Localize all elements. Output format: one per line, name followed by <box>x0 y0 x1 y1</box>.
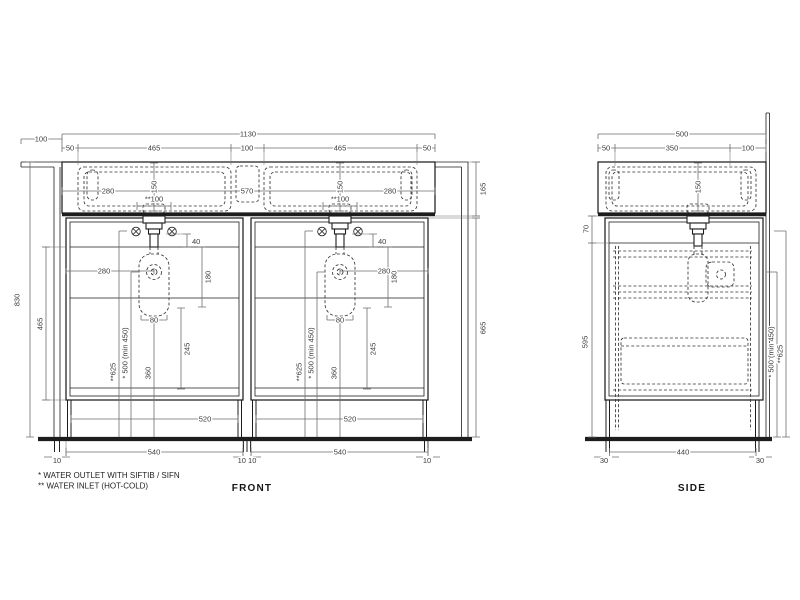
side-view: 500 50 350 100 150 70 595 440 30 30 * 50… <box>581 113 790 494</box>
drain-tailpiece-side <box>687 216 709 246</box>
dim-front-unit-width-right: 540 <box>334 448 347 457</box>
dim-front-edge-left: 50 <box>66 144 74 153</box>
dim-front-inlet-spacing-right: **100 <box>331 195 349 204</box>
dim-front-drain-spacing: 570 <box>241 187 254 196</box>
dim-side-basin-depth: 150 <box>694 181 703 194</box>
front-structure <box>21 162 472 452</box>
dim-front-clear-width-left: 520 <box>199 415 212 424</box>
dim-front-basin-depth-right: 150 <box>336 181 345 194</box>
note-water-inlet: ** WATER INLET (HOT-COLD) <box>38 482 148 491</box>
dim-front-basin-width-left: 465 <box>148 144 161 153</box>
dim-front-basin-width-right: 465 <box>334 144 347 153</box>
side-view-label: SIDE <box>678 483 706 494</box>
side-dimension-lines <box>588 134 790 457</box>
note-water-outlet: * WATER OUTLET WITH SIFTIB / SIFN <box>38 471 180 480</box>
dim-side-front-edge: 50 <box>602 144 610 153</box>
dim-side-back-ledge: 100 <box>742 144 755 153</box>
wall-bracket-left <box>21 162 62 437</box>
dim-side-inlet-height: **625 <box>776 345 785 363</box>
drawing-sheet: 100 1130 50 465 100 465 50 280 570 280 1… <box>0 0 800 600</box>
dim-side-body-height: 595 <box>581 336 590 349</box>
technical-drawing: 100 1130 50 465 100 465 50 280 570 280 1… <box>0 0 800 600</box>
front-dimension-labels: 100 1130 50 465 100 465 50 280 570 280 1… <box>13 130 488 465</box>
foot-stubs-front <box>55 441 429 452</box>
side-basin <box>606 167 756 213</box>
dim-side-outlet-height: * 500 (min 450) <box>767 326 776 378</box>
dim-front-cabinet-height: 665 <box>479 322 488 335</box>
dim-front-inlet-height-left: **625 <box>109 363 118 381</box>
dim-front-lower-zone-right: 245 <box>369 343 378 356</box>
dim-front-door-height: 465 <box>36 318 45 331</box>
dim-front-trap-width-left: 80 <box>150 316 158 325</box>
dim-front-trap-floor-left: 360 <box>144 367 153 380</box>
dim-front-drain-offset-left: 280 <box>102 187 115 196</box>
drain-tailpiece-right <box>329 216 351 247</box>
side-plumbing <box>613 216 752 430</box>
front-plumbing <box>132 216 363 316</box>
dim-side-foot-back: 30 <box>756 456 764 465</box>
cabinet-right <box>251 218 428 437</box>
siphon-trap-right <box>325 247 355 316</box>
siphon-trap-left <box>139 247 169 316</box>
cabinet-left <box>66 218 243 437</box>
siphon-trap-side <box>688 246 734 302</box>
dim-front-unit-width-left: 540 <box>148 448 161 457</box>
cabinet-legs-right <box>253 400 427 437</box>
dim-side-total-depth: 500 <box>676 130 689 139</box>
footnotes: * WATER OUTLET WITH SIFTIB / SIFN ** WAT… <box>38 471 180 491</box>
dim-side-foot-front: 30 <box>600 456 608 465</box>
dim-front-edge-right: 50 <box>423 144 431 153</box>
basin-center-channel <box>236 166 259 202</box>
dim-front-total-width: 1130 <box>240 130 256 139</box>
dim-front-siphon-height-left: 180 <box>204 271 213 284</box>
dim-front-lower-zone-left: 245 <box>183 343 192 356</box>
dim-front-trap-width-right: 80 <box>336 316 344 325</box>
side-structure <box>585 113 772 452</box>
dim-side-top-zone: 70 <box>582 225 591 233</box>
dim-front-trap-floor-right: 360 <box>330 367 339 380</box>
drain-tailpiece-left <box>143 216 165 247</box>
dim-front-panel-left: 10 <box>53 456 61 465</box>
dim-side-base-depth: 440 <box>677 448 690 457</box>
front-view: 100 1130 50 465 100 465 50 280 570 280 1… <box>13 130 488 494</box>
cabinet-interior-dashed <box>613 246 752 430</box>
dim-front-top-gap-right: 40 <box>378 237 386 246</box>
dim-front-height-total: 830 <box>13 294 22 307</box>
dim-front-drain-offset-right: 280 <box>384 187 397 196</box>
dim-front-panel-right: 10 <box>423 456 431 465</box>
dim-front-top-gap-left: 40 <box>192 237 200 246</box>
dim-front-outlet-height-left: * 500 (min 450) <box>121 327 130 379</box>
dim-front-siphon-height-right: 180 <box>390 271 399 284</box>
dim-front-inlet-height-right: **625 <box>295 363 304 381</box>
dim-front-inlet-spacing-left: **100 <box>145 195 163 204</box>
dim-front-overhang: 100 <box>35 135 48 144</box>
dim-front-siphon-offset-right: 280 <box>378 267 391 276</box>
wall-bracket-right <box>435 162 468 437</box>
cabinet-legs-left <box>68 400 242 437</box>
side-dimension-labels: 500 50 350 100 150 70 595 440 30 30 * 50… <box>581 130 785 465</box>
dim-front-panel-center: 10 10 <box>238 456 257 465</box>
dim-front-counter-height: 165 <box>479 183 488 196</box>
dim-front-basin-gap: 100 <box>241 144 254 153</box>
cabinet-legs-side <box>606 400 759 437</box>
front-view-label: FRONT <box>232 483 272 494</box>
dim-front-siphon-offset-left: 280 <box>98 267 111 276</box>
dim-front-basin-depth-left: 150 <box>150 181 159 194</box>
dim-front-clear-width-right: 520 <box>344 415 357 424</box>
dim-side-drain-depth: 350 <box>666 144 679 153</box>
dim-front-outlet-height-right: * 500 (min 450) <box>307 327 316 379</box>
